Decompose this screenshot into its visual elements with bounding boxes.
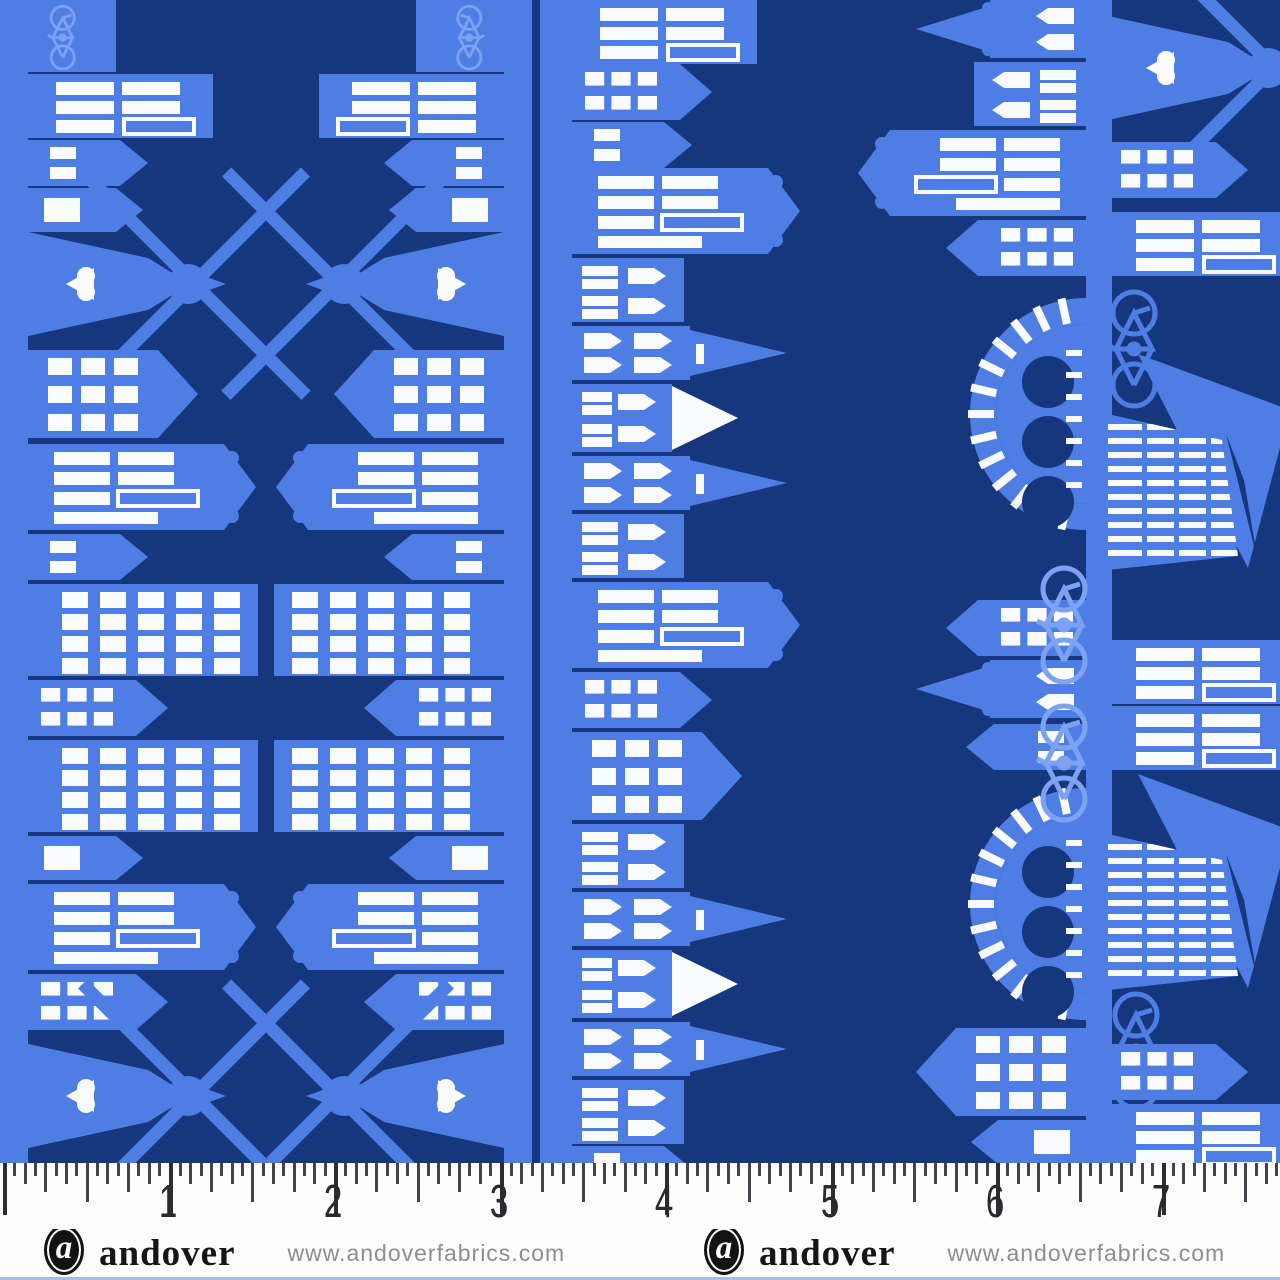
ruler-tick	[924, 1163, 927, 1176]
ruler-tick	[686, 1163, 689, 1184]
fabric-swatch	[0, 0, 1280, 1163]
ruler-tick	[603, 1163, 606, 1184]
ruler-tick	[55, 1163, 58, 1176]
ruler-tick	[551, 1163, 554, 1176]
ruler-tick	[479, 1163, 482, 1184]
ruler-tick	[1048, 1163, 1051, 1176]
ruler-tick	[1255, 1163, 1258, 1176]
ruler-tick	[13, 1163, 16, 1176]
motif-bikeblock	[28, 0, 116, 72]
ruler-tick	[706, 1163, 709, 1192]
ruler-tick	[1130, 1163, 1133, 1176]
ruler-tick	[1037, 1163, 1040, 1192]
ruler-tick	[841, 1163, 844, 1176]
ruler-tick	[913, 1163, 916, 1202]
ruler-tick	[727, 1163, 730, 1184]
ruler-tick	[241, 1163, 244, 1176]
ruler-tick	[975, 1163, 978, 1184]
ruler-tick	[96, 1163, 99, 1176]
ruler-tick	[593, 1163, 596, 1176]
ruler-tick	[272, 1163, 275, 1184]
ruler-tick	[386, 1163, 389, 1176]
ruler-number: 7	[1151, 1174, 1169, 1228]
ruler-tick	[127, 1163, 130, 1192]
motif-flat4	[28, 740, 258, 832]
ruler-tick	[375, 1163, 378, 1192]
motif-grand	[572, 582, 800, 668]
andover-logo-letter: a	[716, 1232, 733, 1265]
ruler-tick	[955, 1163, 958, 1192]
ruler-tick	[644, 1163, 647, 1184]
ruler-tick	[1141, 1163, 1144, 1184]
fabric-product-image: 1234567 a andover www.andoverfabrics.com…	[0, 0, 1280, 1280]
ruler-tick	[448, 1163, 451, 1176]
ruler-tick	[86, 1163, 89, 1202]
ruler-tick	[737, 1163, 740, 1176]
ruler-tick	[189, 1163, 192, 1184]
ruler-tick	[624, 1163, 627, 1192]
ruler-tick	[717, 1163, 720, 1176]
ruler-tick	[1017, 1163, 1020, 1184]
ruler-tick	[862, 1163, 865, 1176]
ruler-tick	[799, 1163, 802, 1176]
ruler-tick	[262, 1163, 265, 1176]
ruler-tick	[293, 1163, 296, 1192]
brand-group: a andover www.andoverfabrics.com	[44, 1229, 565, 1277]
motif-arches	[974, 62, 1086, 126]
ruler-tick	[768, 1163, 771, 1184]
motif-grand	[28, 444, 256, 530]
motif-bars	[1108, 706, 1280, 770]
ruler-tick	[24, 1163, 27, 1184]
ruler-tick	[541, 1163, 544, 1192]
ruler-tick	[872, 1163, 875, 1192]
ruler-tick	[75, 1163, 78, 1176]
ruler-tick	[1203, 1163, 1206, 1192]
ruler-tick	[427, 1163, 430, 1176]
motif-grand	[276, 884, 504, 970]
ruler-tick	[1275, 1163, 1278, 1176]
ruler-tick	[562, 1163, 565, 1184]
motif-bars	[1108, 640, 1280, 704]
motif-grand	[28, 884, 256, 970]
ruler-tick	[437, 1163, 440, 1184]
motif-flat4	[274, 584, 504, 676]
motif-bars	[1108, 1104, 1280, 1163]
ruler-tick	[520, 1163, 523, 1184]
ruler-tick	[634, 1163, 637, 1176]
ruler-tick	[3, 1163, 7, 1215]
ruler-tick	[1265, 1163, 1268, 1184]
ruler-tick	[1234, 1163, 1237, 1176]
ruler-tick	[882, 1163, 885, 1176]
motif-bikeblock	[416, 0, 504, 72]
ruler-tick	[1182, 1163, 1185, 1184]
andover-logo-icon: a	[44, 1229, 84, 1275]
ruler-tick	[179, 1163, 182, 1176]
ruler: 1234567	[0, 1163, 1280, 1229]
ruler-tick	[510, 1163, 513, 1176]
motif-grand	[276, 444, 504, 530]
ruler-tick	[148, 1163, 151, 1184]
ruler-tick	[748, 1163, 751, 1202]
footer-url: www.andoverfabrics.com	[288, 1240, 566, 1267]
ruler-tick	[313, 1163, 316, 1184]
ruler-tick	[1068, 1163, 1071, 1176]
motif-flat4	[274, 740, 504, 832]
motif-grand	[572, 168, 800, 254]
ruler-tick	[934, 1163, 937, 1184]
ruler-tick	[468, 1163, 471, 1176]
footer-url: www.andoverfabrics.com	[948, 1240, 1226, 1267]
ruler-tick	[1089, 1163, 1092, 1176]
motif-arches	[572, 258, 684, 322]
motif-bars	[319, 74, 504, 138]
ruler-tick	[458, 1163, 461, 1192]
ruler-tick	[531, 1163, 534, 1176]
ruler-tick	[582, 1163, 585, 1202]
ruler-number: 5	[820, 1174, 838, 1228]
motif-bars	[28, 74, 213, 138]
ruler-number: 1	[158, 1174, 176, 1228]
motif-flat4	[28, 584, 258, 676]
ruler-tick	[282, 1163, 285, 1176]
ruler-tick	[903, 1163, 906, 1176]
ruler-number: 3	[489, 1174, 507, 1228]
ruler-tick	[44, 1163, 47, 1192]
ruler-tick	[810, 1163, 813, 1184]
ruler-tick	[1193, 1163, 1196, 1176]
andover-logo-icon: a	[704, 1229, 744, 1275]
ruler-tick	[344, 1163, 347, 1176]
motif-bars	[1108, 212, 1280, 276]
ruler-tick	[789, 1163, 792, 1192]
motif-arches	[572, 824, 684, 888]
motif-bars	[572, 0, 757, 64]
ruler-tick	[572, 1163, 575, 1176]
ruler-tick	[200, 1163, 203, 1176]
ruler-tick	[1079, 1163, 1082, 1202]
ruler-tick	[1172, 1163, 1175, 1176]
ruler-tick	[779, 1163, 782, 1176]
ruler-tick	[355, 1163, 358, 1184]
brand-wordmark: andover	[759, 1232, 896, 1275]
motif-arches	[572, 1080, 684, 1144]
ruler-tick	[613, 1163, 616, 1176]
ruler-tick	[117, 1163, 120, 1176]
andover-logo-letter: a	[56, 1232, 73, 1265]
ruler-tick	[406, 1163, 409, 1176]
ruler-tick	[1058, 1163, 1061, 1184]
motif-arches	[572, 514, 684, 578]
ruler-tick	[851, 1163, 854, 1184]
ruler-tick	[396, 1163, 399, 1184]
ruler-tick	[251, 1163, 254, 1202]
ruler-tick	[1224, 1163, 1227, 1184]
ruler-tick	[758, 1163, 761, 1176]
footer-bar: a andover www.andoverfabrics.com a andov…	[0, 1229, 1280, 1277]
ruler-tick	[1110, 1163, 1113, 1176]
ruler-tick	[65, 1163, 68, 1184]
ruler-tick	[893, 1163, 896, 1184]
ruler-tick	[417, 1163, 420, 1202]
ruler-tick	[696, 1163, 699, 1176]
ruler-tick	[1213, 1163, 1216, 1176]
ruler-tick	[34, 1163, 37, 1176]
ruler-tick	[1244, 1163, 1247, 1202]
ruler-number: 2	[324, 1174, 342, 1228]
ruler-tick	[1099, 1163, 1102, 1184]
ruler-tick	[944, 1163, 947, 1176]
ruler-number: 6	[986, 1174, 1004, 1228]
ruler-tick	[220, 1163, 223, 1176]
ruler-tick	[365, 1163, 368, 1176]
ruler-tick	[1120, 1163, 1123, 1192]
brand-wordmark: andover	[99, 1232, 236, 1275]
ruler-tick	[210, 1163, 213, 1192]
ruler-tick	[106, 1163, 109, 1184]
motif-grand	[858, 130, 1086, 216]
ruler-tick	[1027, 1163, 1030, 1176]
ruler-tick	[303, 1163, 306, 1176]
ruler-tick	[965, 1163, 968, 1176]
ruler-number: 4	[655, 1174, 673, 1228]
ruler-tick	[675, 1163, 678, 1176]
brand-group: a andover www.andoverfabrics.com	[704, 1229, 1225, 1277]
ruler-tick	[1006, 1163, 1009, 1176]
ruler-tick	[137, 1163, 140, 1176]
ruler-tick	[231, 1163, 234, 1184]
